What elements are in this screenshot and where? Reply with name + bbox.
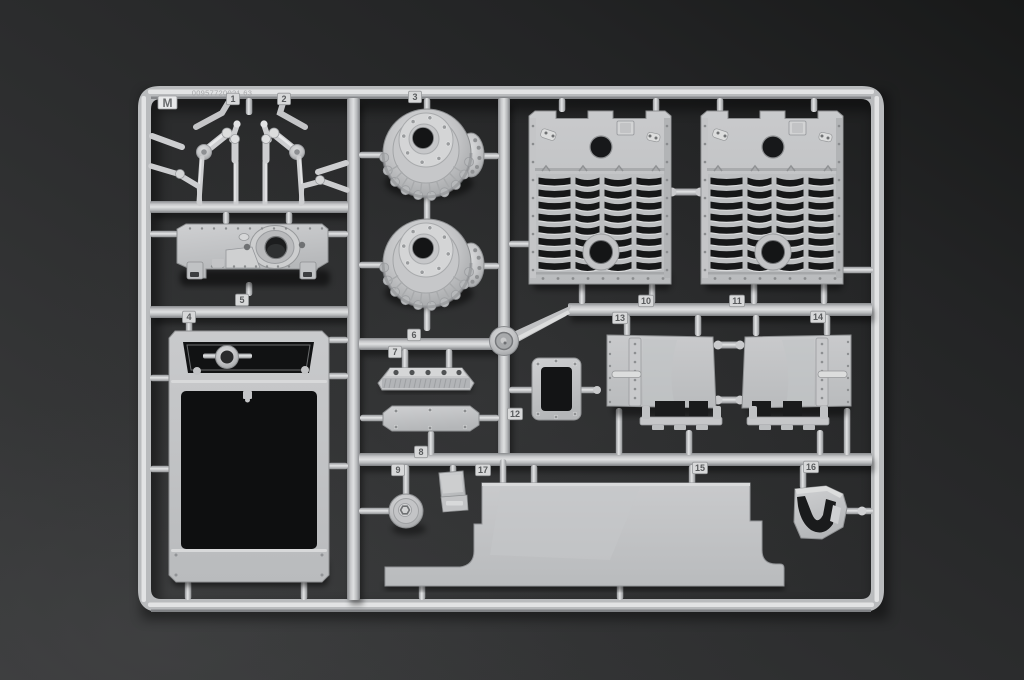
svg-text:7: 7 [392, 347, 397, 357]
svg-text:10: 10 [641, 296, 651, 306]
svg-text:12: 12 [510, 409, 520, 419]
svg-text:13: 13 [615, 313, 625, 323]
svg-text:5: 5 [239, 295, 244, 305]
svg-text:8: 8 [418, 447, 423, 457]
svg-text:15: 15 [695, 463, 705, 473]
svg-text:11: 11 [732, 296, 742, 306]
svg-text:3: 3 [412, 92, 417, 102]
svg-text:14: 14 [813, 312, 823, 322]
svg-text:6: 6 [411, 330, 416, 340]
svg-text:9: 9 [395, 465, 400, 475]
svg-text:M: M [163, 96, 173, 110]
svg-text:00957720021 63: 00957720021 63 [192, 89, 253, 98]
svg-text:4: 4 [186, 312, 191, 322]
svg-text:2: 2 [281, 94, 286, 104]
svg-text:17: 17 [478, 465, 488, 475]
svg-text:1: 1 [230, 94, 235, 104]
svg-text:16: 16 [806, 462, 816, 472]
